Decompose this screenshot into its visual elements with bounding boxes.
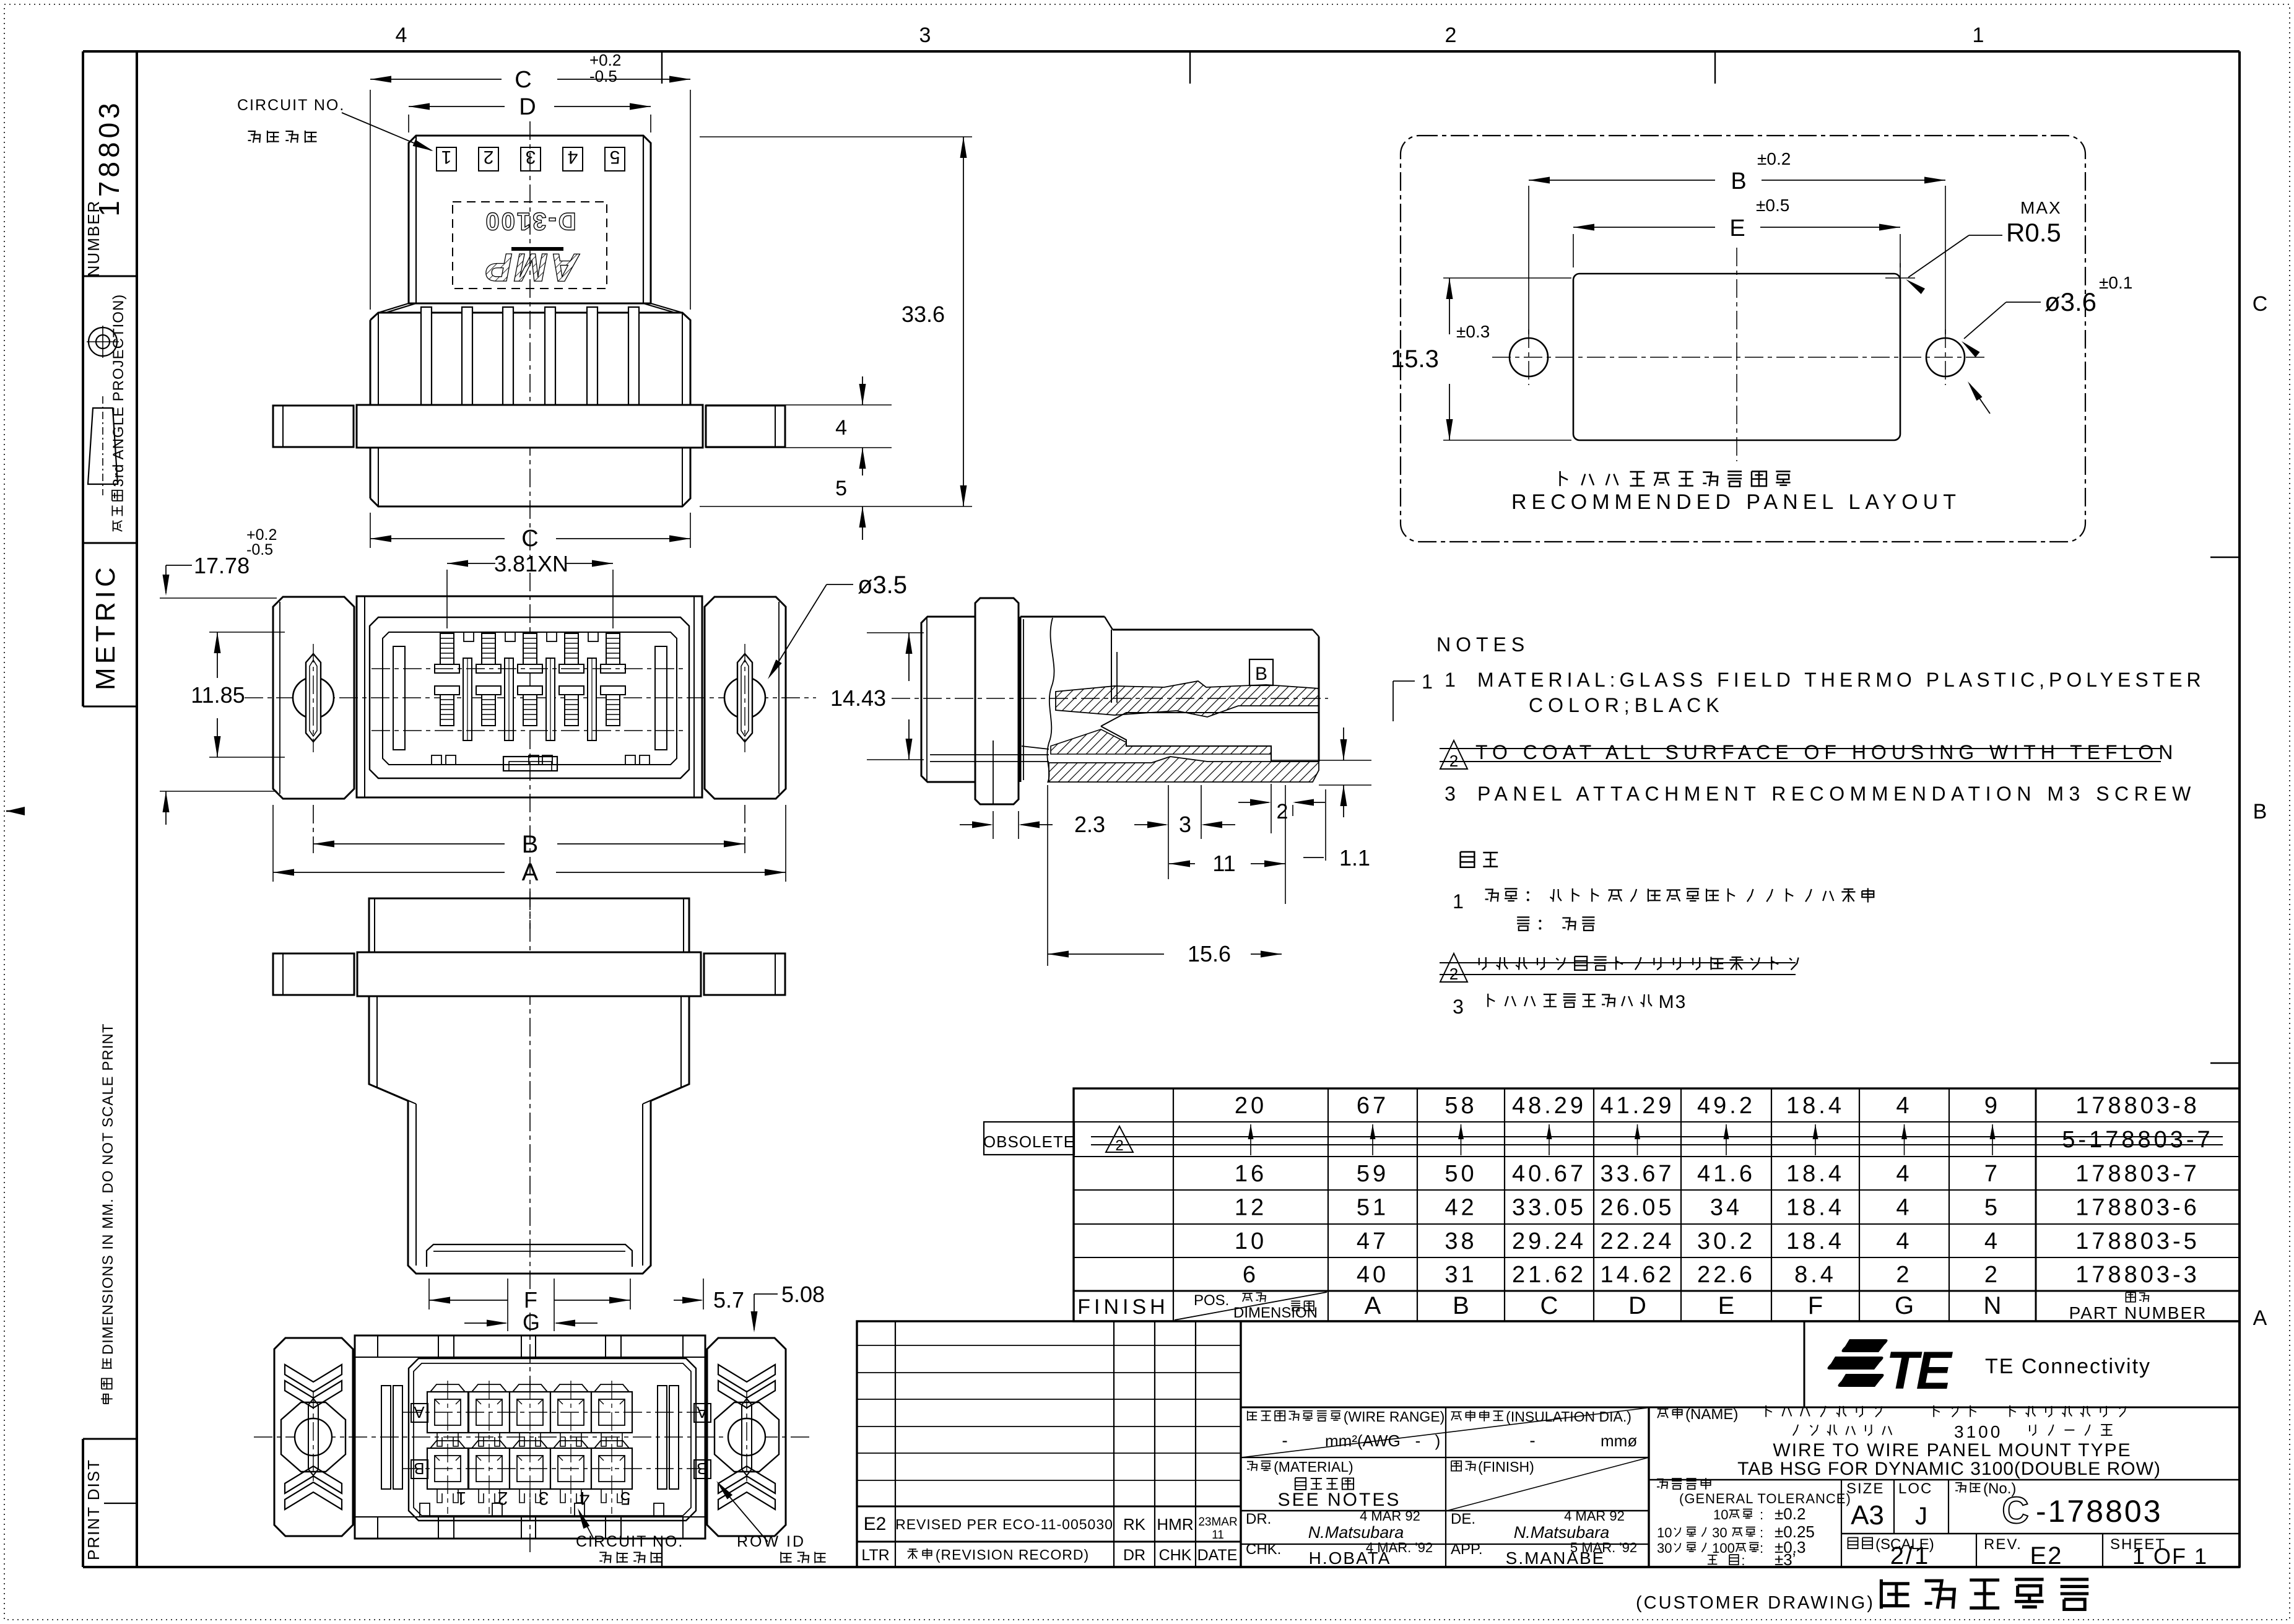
svg-text:D: D (1628, 1292, 1646, 1319)
svg-text:D-3100: D-3100 (484, 207, 576, 235)
svg-text:POS.: POS. (1194, 1292, 1229, 1309)
svg-text:DIMENSION: DIMENSION (1233, 1305, 1318, 1321)
svg-text:HMR: HMR (1157, 1515, 1193, 1534)
svg-text:(MATERIAL): (MATERIAL) (1274, 1459, 1353, 1475)
svg-text:N.Matsubara: N.Matsubara (1514, 1523, 1610, 1542)
svg-text:(INSULATION DIA.): (INSULATION DIA.) (1506, 1409, 1631, 1425)
svg-text:58: 58 (1445, 1093, 1477, 1119)
svg-text:8.4: 8.4 (1794, 1262, 1836, 1288)
svg-text:2/1: 2/1 (1890, 1542, 1931, 1570)
svg-text:10: 10 (1713, 1507, 1728, 1522)
svg-text:3: 3 (526, 147, 536, 167)
svg-text:±0.1: ±0.1 (2099, 273, 2132, 292)
svg-text:4 MAR 92: 4 MAR 92 (1360, 1508, 1420, 1524)
svg-text:WIRE TO WIRE PANEL MOUNT TYPE: WIRE TO WIRE PANEL MOUNT TYPE (1773, 1440, 2131, 1461)
svg-text:178803-7: 178803-7 (2075, 1161, 2200, 1187)
svg-text:PANEL ATTACHMENT RECOMMENDATIO: PANEL ATTACHMENT RECOMMENDATION M3 SCREW (1477, 783, 2196, 805)
svg-text:1: 1 (1422, 671, 1433, 693)
svg-text:RECOMMENDED PANEL LAYOUT: RECOMMENDED PANEL LAYOUT (1511, 490, 1961, 514)
svg-text:TE Connectivity: TE Connectivity (1985, 1355, 2151, 1378)
svg-text:30: 30 (1712, 1525, 1727, 1540)
svg-text:2: 2 (1277, 800, 1288, 823)
svg-text:A: A (1365, 1292, 1381, 1319)
svg-text:33.67: 33.67 (1600, 1161, 1674, 1187)
svg-text:PART NUMBER: PART NUMBER (2069, 1303, 2207, 1322)
svg-text:MAX: MAX (2020, 198, 2062, 217)
svg-text:30: 30 (1657, 1540, 1672, 1556)
svg-text:SIZE: SIZE (1846, 1480, 1884, 1497)
svg-text:CHK: CHK (1159, 1547, 1192, 1564)
svg-text:J: J (1915, 1503, 1927, 1530)
svg-text:A: A (2253, 1306, 2267, 1330)
svg-text:4 MAR 92: 4 MAR 92 (1564, 1508, 1625, 1524)
svg-text:C: C (515, 67, 531, 93)
svg-text:PRINT DIST: PRINT DIST (84, 1459, 103, 1560)
svg-text:23MAR: 23MAR (1198, 1516, 1237, 1529)
svg-text:CIRCUIT NO.: CIRCUIT NO. (237, 97, 345, 114)
svg-text:G: G (1895, 1292, 1914, 1319)
svg-text:N.Matsubara: N.Matsubara (1308, 1523, 1404, 1542)
svg-text:1: 1 (441, 147, 452, 167)
svg-text:FINISH: FINISH (1077, 1295, 1168, 1319)
svg-text:N: N (1984, 1292, 2002, 1319)
svg-text:ROW ID: ROW ID (737, 1533, 806, 1550)
svg-text:7: 7 (1984, 1161, 2001, 1187)
svg-text:15.3: 15.3 (1391, 345, 1439, 373)
svg-text:E2: E2 (864, 1514, 887, 1534)
svg-text:COLOR;BLACK: COLOR;BLACK (1529, 694, 1724, 716)
svg-text:14.62: 14.62 (1600, 1262, 1674, 1288)
svg-text:OBSOLETE: OBSOLETE (983, 1132, 1075, 1151)
svg-text:B: B (2253, 800, 2267, 823)
svg-text:15.6: 15.6 (1188, 941, 1231, 966)
svg-text:(FINISH): (FINISH) (1478, 1459, 1534, 1475)
svg-text:49.2: 49.2 (1697, 1093, 1755, 1119)
svg-text:1: 1 (456, 1488, 467, 1508)
svg-text:(NAME): (NAME) (1685, 1406, 1738, 1423)
svg-text:47: 47 (1357, 1228, 1389, 1254)
svg-text:34: 34 (1710, 1195, 1742, 1221)
svg-text:B: B (1731, 168, 1746, 194)
svg-text:B: B (1255, 664, 1267, 684)
svg-text:G: G (523, 1309, 540, 1335)
svg-text:5: 5 (610, 147, 620, 167)
svg-text:±0.2: ±0.2 (1757, 149, 1791, 168)
svg-text:E2: E2 (2030, 1542, 2063, 1570)
svg-text:(CUSTOMER DRAWING): (CUSTOMER DRAWING) (1636, 1593, 1875, 1613)
svg-text:42: 42 (1445, 1195, 1477, 1221)
svg-text:31: 31 (1445, 1262, 1477, 1288)
svg-text:2: 2 (1445, 24, 1457, 47)
svg-text:DR: DR (1123, 1547, 1145, 1564)
svg-text:TE: TE (1886, 1341, 1953, 1400)
svg-text:18.4: 18.4 (1786, 1161, 1844, 1187)
svg-text:(WIRE RANGE): (WIRE RANGE) (1344, 1409, 1445, 1425)
svg-text:2.3: 2.3 (1074, 812, 1105, 837)
svg-text:4: 4 (396, 24, 407, 47)
svg-text:178803: 178803 (93, 99, 125, 217)
svg-text:A: A (522, 859, 539, 886)
svg-text:-: - (1415, 1431, 1421, 1450)
svg-text:DE.: DE. (1451, 1511, 1475, 1527)
svg-text:41.6: 41.6 (1697, 1161, 1755, 1187)
svg-text:-0.5: -0.5 (246, 541, 273, 558)
svg-text:1 OF 1: 1 OF 1 (2132, 1544, 2208, 1569)
svg-text:D: D (519, 94, 536, 120)
svg-text:2: 2 (1984, 1262, 2001, 1288)
svg-text:5-178803-7: 5-178803-7 (2062, 1127, 2213, 1153)
svg-text:4: 4 (580, 1488, 590, 1508)
svg-text:4: 4 (1896, 1161, 1912, 1187)
svg-text:B: B (522, 831, 539, 858)
svg-text:TAB HSG FOR DYNAMIC 3100(DOUBL: TAB HSG FOR DYNAMIC 3100(DOUBLE ROW) (1737, 1459, 2161, 1479)
svg-text:5: 5 (620, 1488, 631, 1508)
svg-text:C: C (2002, 1490, 2028, 1531)
svg-text:2: 2 (1115, 1137, 1123, 1154)
svg-text:3: 3 (1179, 812, 1191, 837)
svg-text:DIMENSIONS IN MM. DO NOT SCALE: DIMENSIONS IN MM. DO NOT SCALE PRINT (100, 1023, 116, 1355)
svg-text:178803-8: 178803-8 (2075, 1093, 2200, 1119)
svg-text:AMP: AMP (484, 245, 580, 290)
svg-text:RK: RK (1123, 1515, 1146, 1534)
svg-text:59: 59 (1357, 1161, 1389, 1187)
svg-text:40: 40 (1357, 1262, 1389, 1288)
svg-text:22.24: 22.24 (1600, 1228, 1674, 1254)
svg-text:10: 10 (1235, 1228, 1267, 1254)
svg-text:-: - (1282, 1431, 1287, 1450)
svg-text::: : (1760, 1540, 1763, 1556)
svg-text::: : (1760, 1525, 1763, 1540)
svg-text:1.1: 1.1 (1339, 845, 1370, 871)
svg-text:2: 2 (498, 1488, 508, 1508)
svg-text:29.24: 29.24 (1512, 1228, 1586, 1254)
svg-text:-0.5: -0.5 (589, 67, 617, 85)
svg-text:40.67: 40.67 (1512, 1161, 1586, 1187)
svg-text:11: 11 (1212, 1529, 1224, 1542)
svg-text:22.6: 22.6 (1697, 1262, 1755, 1288)
svg-text:REV.: REV. (1984, 1536, 2022, 1553)
svg-text:C: C (2253, 292, 2268, 316)
svg-text:9: 9 (1984, 1093, 2001, 1119)
svg-text:178803-3: 178803-3 (2075, 1262, 2200, 1288)
svg-text:4: 4 (568, 147, 578, 167)
svg-text:33.05: 33.05 (1512, 1195, 1586, 1221)
svg-text:17.78: 17.78 (194, 553, 250, 578)
svg-text:18.4: 18.4 (1786, 1228, 1844, 1254)
svg-text:TO COAT ALL SURFACE OF HOUSING: TO COAT ALL SURFACE OF HOUSING WITH TEFL… (1475, 741, 2178, 763)
svg-text:3: 3 (919, 24, 931, 47)
svg-text:1: 1 (1453, 890, 1464, 913)
svg-text:50: 50 (1445, 1161, 1477, 1187)
svg-text:C: C (521, 526, 538, 552)
svg-text:APP.: APP. (1451, 1541, 1483, 1558)
svg-text:A3: A3 (1851, 1500, 1884, 1531)
svg-text:C: C (1540, 1292, 1558, 1319)
svg-text::: : (1760, 1507, 1763, 1522)
svg-text:SEE NOTES: SEE NOTES (1278, 1490, 1401, 1510)
svg-text:4: 4 (1896, 1228, 1912, 1254)
svg-text:48.29: 48.29 (1512, 1093, 1586, 1119)
svg-text:5: 5 (1984, 1195, 2001, 1221)
svg-text:16: 16 (1235, 1161, 1267, 1187)
svg-text:B: B (1453, 1292, 1469, 1319)
svg-text:21.62: 21.62 (1512, 1262, 1586, 1288)
svg-text:MATERIAL:GLASS FIELD THERMO PL: MATERIAL:GLASS FIELD THERMO PLASTIC,POLY… (1477, 669, 2205, 691)
svg-text:(REVISION RECORD): (REVISION RECORD) (936, 1547, 1089, 1563)
svg-text:12: 12 (1235, 1195, 1267, 1221)
svg-text:1: 1 (1445, 669, 1456, 691)
svg-text:5.08: 5.08 (781, 1282, 825, 1307)
svg-text:11.85: 11.85 (191, 682, 245, 708)
svg-text:41.29: 41.29 (1600, 1093, 1674, 1119)
svg-text:LTR: LTR (861, 1547, 889, 1564)
svg-text:LOC: LOC (1898, 1480, 1932, 1497)
svg-text:CHK.: CHK. (1246, 1541, 1281, 1558)
svg-text:NOTES: NOTES (1436, 633, 1529, 656)
svg-text:51: 51 (1357, 1195, 1389, 1221)
svg-text:M3: M3 (1659, 992, 1687, 1012)
svg-text:DATE: DATE (1197, 1547, 1238, 1564)
svg-text:1: 1 (1973, 24, 1984, 47)
svg-text:-: - (1529, 1431, 1535, 1450)
svg-text:H.OBATA: H.OBATA (1309, 1548, 1391, 1568)
svg-text:33.6: 33.6 (902, 302, 945, 327)
svg-text:4: 4 (1984, 1228, 2001, 1254)
svg-text:REVISED PER ECO-11-005030: REVISED PER ECO-11-005030 (895, 1516, 1113, 1532)
svg-text:3: 3 (1453, 996, 1464, 1018)
svg-text:67: 67 (1357, 1093, 1389, 1119)
svg-text:178803-6: 178803-6 (2075, 1195, 2200, 1221)
svg-text:±0.3: ±0.3 (1456, 322, 1490, 341)
svg-text:4: 4 (1896, 1093, 1912, 1119)
svg-text:±3ʼ: ±3ʼ (1775, 1550, 1796, 1569)
svg-text:5.7: 5.7 (713, 1287, 744, 1313)
svg-text:METRIC: METRIC (90, 563, 121, 690)
svg-text:3100: 3100 (1954, 1422, 2002, 1441)
svg-text:30.2: 30.2 (1697, 1228, 1755, 1254)
svg-text:E: E (1729, 215, 1745, 241)
svg-text:20: 20 (1235, 1093, 1267, 1119)
svg-text:38: 38 (1445, 1228, 1477, 1254)
svg-text::: : (1741, 1553, 1745, 1568)
svg-text:±0.5: ±0.5 (1756, 196, 1789, 215)
svg-text:(GENERAL TOLERANCE): (GENERAL TOLERANCE) (1679, 1491, 1851, 1506)
svg-text:4: 4 (1896, 1195, 1912, 1221)
svg-text:R0.5: R0.5 (2006, 218, 2061, 247)
svg-text:mmø: mmø (1601, 1431, 1637, 1450)
svg-text:DR.: DR. (1246, 1511, 1271, 1527)
svg-text:S.MANABE: S.MANABE (1506, 1548, 1605, 1568)
svg-text:3.81XN: 3.81XN (494, 551, 568, 576)
svg-text:-178803: -178803 (2036, 1494, 2163, 1529)
svg-text:3: 3 (539, 1488, 549, 1508)
svg-text:ø3.6: ø3.6 (2044, 287, 2096, 316)
svg-text:11: 11 (1212, 851, 1235, 876)
svg-text:mm²(AWG: mm²(AWG (1325, 1431, 1401, 1450)
svg-text:5: 5 (835, 477, 847, 500)
svg-text:±0.2: ±0.2 (1775, 1505, 1805, 1523)
svg-text:100: 100 (1712, 1540, 1735, 1556)
svg-text:6: 6 (1243, 1262, 1259, 1288)
svg-text:4: 4 (835, 416, 847, 440)
svg-text:26.05: 26.05 (1600, 1195, 1674, 1221)
svg-text:E: E (1718, 1292, 1735, 1319)
svg-text:3: 3 (1445, 783, 1456, 805)
svg-text:10: 10 (1657, 1525, 1672, 1540)
svg-text:2: 2 (1896, 1262, 1912, 1288)
svg-text:F: F (1808, 1292, 1823, 1319)
svg-text:178803-5: 178803-5 (2075, 1228, 2200, 1254)
svg-text:3rd ANGLE PROJECTION): 3rd ANGLE PROJECTION) (110, 294, 127, 487)
svg-text:2: 2 (484, 147, 494, 167)
svg-text:F: F (524, 1287, 537, 1313)
svg-text:18.4: 18.4 (1786, 1093, 1844, 1119)
svg-text:18.4: 18.4 (1786, 1195, 1844, 1221)
svg-text:14.43: 14.43 (830, 685, 886, 711)
svg-text:): ) (1435, 1431, 1441, 1450)
svg-text:ø3.5: ø3.5 (858, 571, 907, 599)
